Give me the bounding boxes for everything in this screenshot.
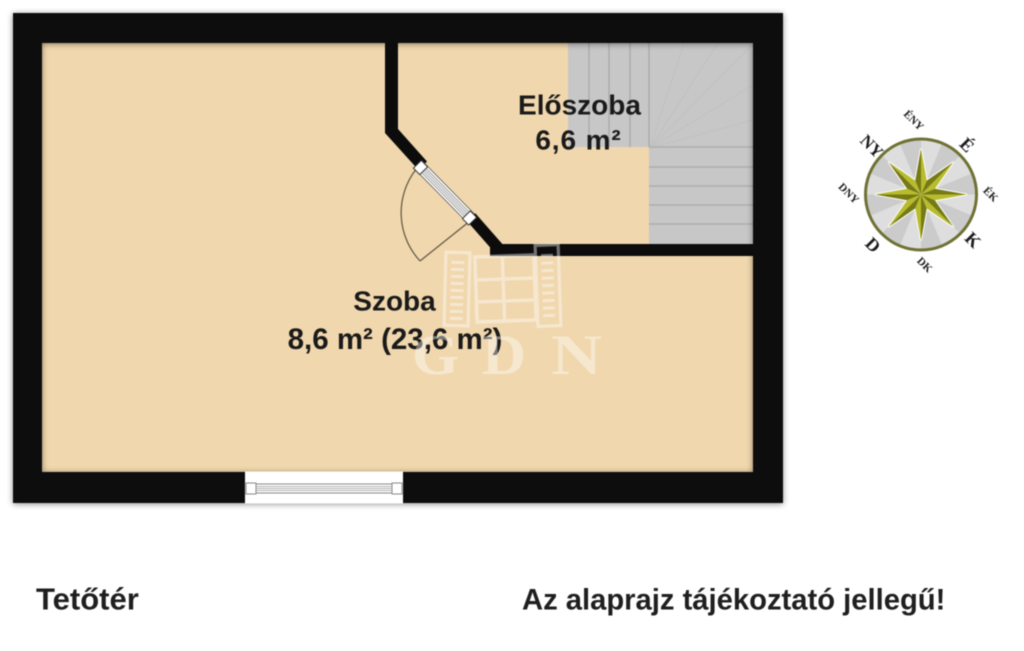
svg-text:6,6 m²: 6,6 m² bbox=[535, 125, 621, 156]
svg-text:G: G bbox=[412, 324, 459, 387]
svg-text:D: D bbox=[482, 324, 526, 387]
svg-text:Előszoba: Előszoba bbox=[518, 90, 641, 121]
svg-text:N: N bbox=[551, 324, 602, 387]
svg-text:Az alaprajz tájékoztató jelleg: Az alaprajz tájékoztató jellegű! bbox=[522, 585, 945, 617]
svg-text:Tetőtér: Tetőtér bbox=[36, 582, 139, 617]
svg-text:Szoba: Szoba bbox=[353, 286, 436, 317]
svg-text:8,6 m² (23,6 m²): 8,6 m² (23,6 m²) bbox=[288, 323, 503, 356]
